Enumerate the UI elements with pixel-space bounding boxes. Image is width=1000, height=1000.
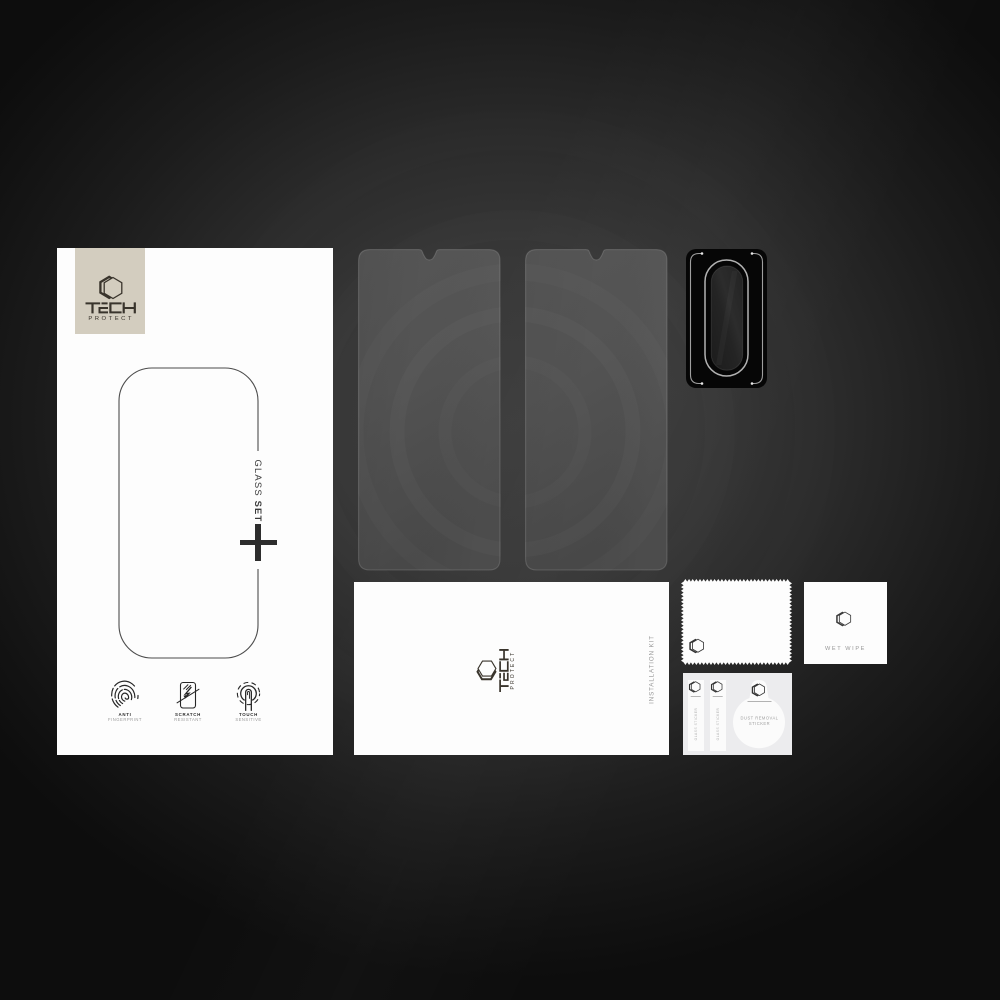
svg-text:DUST REMOVAL: DUST REMOVAL [741,716,779,721]
svg-text:RESISTANT: RESISTANT [174,717,202,722]
svg-text:GLASS STICKER: GLASS STICKER [716,708,720,741]
svg-text:SENSITIVE: SENSITIVE [235,717,261,722]
svg-text:STICKER: STICKER [749,721,770,726]
svg-text:GLASS STICKER: GLASS STICKER [694,708,698,741]
svg-text:PROTECT: PROTECT [510,651,516,690]
svg-text:FINGERPRINT: FINGERPRINT [108,717,142,722]
